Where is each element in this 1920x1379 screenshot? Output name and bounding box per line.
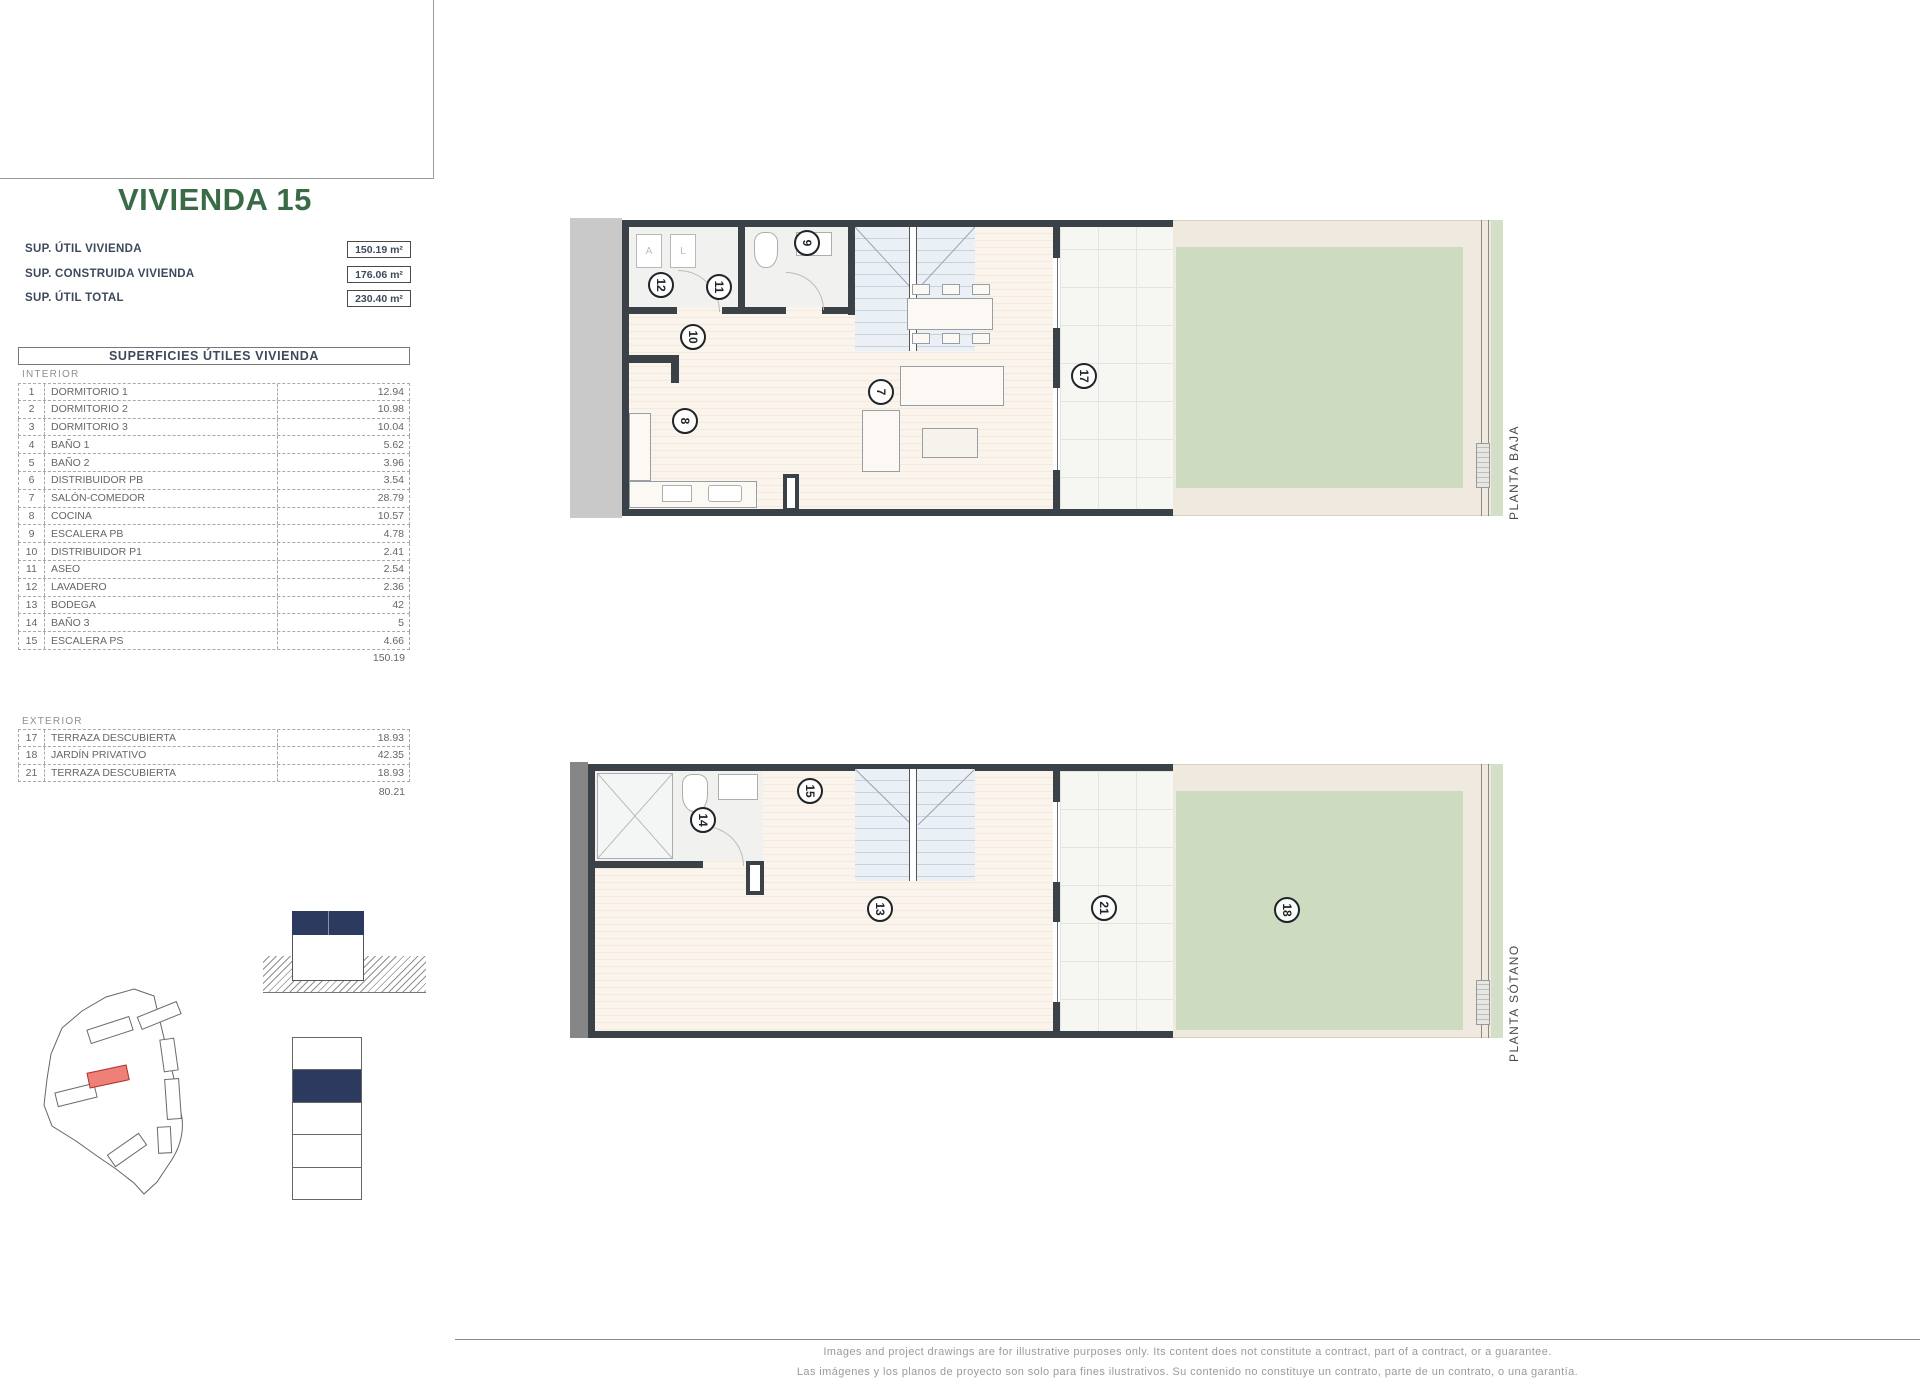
plan-label-planta-sotano: PLANTA SÓTANO xyxy=(1507,962,1521,1062)
row-number: 3 xyxy=(19,419,45,436)
surface-row: 14BAÑO 35 xyxy=(18,614,410,632)
surface-row: 17TERRAZA DESCUBIERTA18.93 xyxy=(18,729,410,747)
stat-value: 176.06 m² xyxy=(347,266,411,283)
surface-row: 12LAVADERO2.36 xyxy=(18,579,410,597)
surface-row: 13BODEGA42 xyxy=(18,597,410,615)
surface-row: 21TERRAZA DESCUBIERTA18.93 xyxy=(18,765,410,783)
sliding-door-glass xyxy=(1053,922,1060,1002)
row-name: BAÑO 3 xyxy=(45,614,277,631)
garden-gate xyxy=(1476,980,1490,1025)
stat-value: 230.40 m² xyxy=(347,290,411,307)
coffee-table xyxy=(922,428,978,458)
stack-level xyxy=(293,1168,361,1199)
sofa xyxy=(900,366,1004,406)
row-name: ASEO xyxy=(45,561,277,578)
site-plan xyxy=(38,985,200,1203)
surface-row: 1DORMITORIO 112.94 xyxy=(18,383,410,401)
row-name: ESCALERA PS xyxy=(45,632,277,649)
row-value: 3.96 xyxy=(277,454,409,471)
street-strip xyxy=(570,218,622,518)
shower-icon xyxy=(597,773,673,859)
room-marker-13: 13 xyxy=(867,896,893,922)
wall xyxy=(1060,220,1173,227)
room-marker-7: 7 xyxy=(868,379,894,405)
row-value: 4.66 xyxy=(277,632,409,649)
footer-disclaimer-en: Images and project drawings are for illu… xyxy=(455,1346,1920,1358)
exterior-table: 17TERRAZA DESCUBIERTA18.9318JARDÍN PRIVA… xyxy=(18,729,410,782)
room-marker-9: 9 xyxy=(794,230,820,256)
wall xyxy=(822,307,855,314)
row-number: 14 xyxy=(19,614,45,631)
row-number: 13 xyxy=(19,597,45,614)
room-marker-21: 21 xyxy=(1091,895,1117,921)
sliding-door-glass xyxy=(1053,388,1060,470)
row-number: 12 xyxy=(19,579,45,596)
row-name: SALÓN-COMEDOR xyxy=(45,490,277,507)
row-name: LAVADERO xyxy=(45,579,277,596)
room-marker-10: 10 xyxy=(680,324,706,350)
kitchen-counter xyxy=(629,413,651,481)
wall xyxy=(595,861,703,868)
stack-level xyxy=(293,1103,361,1135)
row-value: 5 xyxy=(277,614,409,631)
stack-level xyxy=(293,1038,361,1070)
sink-icon xyxy=(718,774,758,800)
surface-row: 6DISTRIBUIDOR PB3.54 xyxy=(18,472,410,490)
row-number: 4 xyxy=(19,436,45,453)
garden-lawn xyxy=(1176,247,1463,488)
wall xyxy=(1060,764,1173,771)
row-number: 5 xyxy=(19,454,45,471)
row-name: COCINA xyxy=(45,508,277,525)
stack-diagram xyxy=(292,1037,362,1200)
garden-gate xyxy=(1476,443,1490,488)
floor-plan-planta-baja: A L xyxy=(570,218,1503,518)
surface-row: 9ESCALERA PB4.78 xyxy=(18,525,410,543)
surface-row: 10DISTRIBUIDOR P12.41 xyxy=(18,543,410,561)
chair xyxy=(942,284,960,295)
site-building xyxy=(165,1079,182,1120)
row-value: 42.35 xyxy=(277,747,409,764)
toilet-icon xyxy=(754,232,778,268)
section-basement-block xyxy=(292,934,364,981)
door-leaf xyxy=(787,478,795,508)
site-building xyxy=(157,1127,171,1154)
row-number: 17 xyxy=(19,730,45,746)
stack-level xyxy=(293,1135,361,1167)
wall xyxy=(848,227,855,315)
row-value: 10.98 xyxy=(277,401,409,418)
floor-plan-planta-sotano: 1415132118 xyxy=(570,762,1503,1038)
row-number: 7 xyxy=(19,490,45,507)
row-number: 2 xyxy=(19,401,45,418)
stat-label: SUP. ÚTIL TOTAL xyxy=(25,292,124,304)
interior-section-label: INTERIOR xyxy=(22,369,79,380)
chair xyxy=(972,333,990,344)
dryer-icon: L xyxy=(670,234,696,268)
row-value: 42 xyxy=(277,597,409,614)
surface-row: 5BAÑO 23.96 xyxy=(18,454,410,472)
chair xyxy=(912,284,930,295)
row-value: 2.54 xyxy=(277,561,409,578)
exterior-total: 80.21 xyxy=(18,786,410,798)
footer-divider xyxy=(455,1339,1920,1340)
surfaces-table-header: SUPERFICIES ÚTILES VIVIENDA xyxy=(18,347,410,365)
interior-total: 150.19 xyxy=(18,652,410,664)
row-value: 5.62 xyxy=(277,436,409,453)
row-number: 10 xyxy=(19,543,45,560)
stat-label: SUP. ÚTIL VIVIENDA xyxy=(25,243,142,255)
closet-nook xyxy=(750,865,760,891)
row-value: 2.36 xyxy=(277,579,409,596)
surface-row: 2DORMITORIO 210.98 xyxy=(18,401,410,419)
surface-row: 18JARDÍN PRIVATIVO42.35 xyxy=(18,747,410,765)
surface-row: 11ASEO2.54 xyxy=(18,561,410,579)
row-number: 6 xyxy=(19,472,45,489)
window-glass xyxy=(1053,802,1060,882)
stat-label: SUP. CONSTRUIDA VIVIENDA xyxy=(25,268,195,280)
room-marker-17: 17 xyxy=(1071,363,1097,389)
kitchen-sink-icon xyxy=(662,485,692,502)
wall xyxy=(722,307,786,314)
row-value: 12.94 xyxy=(277,384,409,400)
chair xyxy=(912,333,930,344)
stair-rail xyxy=(909,769,917,881)
plan-label-planta-baja: PLANTA BAJA xyxy=(1507,438,1521,520)
row-value: 3.54 xyxy=(277,472,409,489)
row-value: 2.41 xyxy=(277,543,409,560)
terrace-21 xyxy=(1060,764,1173,1038)
room-marker-18: 18 xyxy=(1274,897,1300,923)
wall xyxy=(1060,509,1173,516)
row-name: DORMITORIO 2 xyxy=(45,401,277,418)
surface-row: 4BAÑO 15.62 xyxy=(18,436,410,454)
room-marker-12: 12 xyxy=(648,272,674,298)
row-value: 10.57 xyxy=(277,508,409,525)
row-value: 4.78 xyxy=(277,525,409,542)
section-highlight-block xyxy=(292,911,364,935)
wall xyxy=(629,307,677,314)
row-name: DISTRIBUIDOR P1 xyxy=(45,543,277,560)
chair xyxy=(942,333,960,344)
footer-disclaimer-es: Las imágenes y los planos de proyecto so… xyxy=(455,1366,1920,1378)
wall xyxy=(671,355,679,383)
row-name: TERRAZA DESCUBIERTA xyxy=(45,730,277,746)
row-number: 18 xyxy=(19,747,45,764)
row-name: BODEGA xyxy=(45,597,277,614)
interior-table: 1DORMITORIO 112.942DORMITORIO 210.983DOR… xyxy=(18,383,410,650)
corner-frame xyxy=(0,0,434,179)
surface-row: 3DORMITORIO 310.04 xyxy=(18,419,410,437)
stat-value: 150.19 m² xyxy=(347,241,411,258)
hob-icon xyxy=(708,485,742,502)
row-value: 28.79 xyxy=(277,490,409,507)
row-value: 10.04 xyxy=(277,419,409,436)
row-number: 1 xyxy=(19,384,45,400)
surface-row: 7SALÓN-COMEDOR28.79 xyxy=(18,490,410,508)
row-number: 8 xyxy=(19,508,45,525)
wall xyxy=(1060,1031,1173,1038)
row-name: ESCALERA PB xyxy=(45,525,277,542)
row-value: 18.93 xyxy=(277,730,409,746)
exterior-section-label: EXTERIOR xyxy=(22,716,83,727)
row-name: DISTRIBUIDOR PB xyxy=(45,472,277,489)
washer-icon: A xyxy=(636,234,662,268)
room-marker-11: 11 xyxy=(706,274,732,300)
row-name: DORMITORIO 3 xyxy=(45,419,277,436)
row-value: 18.93 xyxy=(277,765,409,782)
hedge xyxy=(1491,764,1503,1038)
hedge xyxy=(1491,220,1503,516)
page-title: VIVIENDA 15 xyxy=(118,182,312,218)
surface-row: 8COCINA10.57 xyxy=(18,508,410,526)
dining-table xyxy=(907,298,993,330)
room-marker-8: 8 xyxy=(672,408,698,434)
armchair xyxy=(862,410,900,472)
row-number: 15 xyxy=(19,632,45,649)
chair xyxy=(972,284,990,295)
plan-sheet: VIVIENDA 15 SUP. ÚTIL VIVIENDA150.19 m²S… xyxy=(0,0,1920,1379)
row-number: 9 xyxy=(19,525,45,542)
room-marker-14: 14 xyxy=(690,807,716,833)
row-number: 11 xyxy=(19,561,45,578)
window-glass xyxy=(1053,258,1060,328)
wall xyxy=(738,227,745,307)
row-name: BAÑO 2 xyxy=(45,454,277,471)
row-name: TERRAZA DESCUBIERTA xyxy=(45,765,277,782)
earth-strip xyxy=(570,762,588,1038)
stack-level-highlight xyxy=(293,1070,361,1102)
room-marker-15: 15 xyxy=(797,778,823,804)
garden-lawn xyxy=(1176,791,1463,1030)
row-name: DORMITORIO 1 xyxy=(45,384,277,400)
surface-row: 15ESCALERA PS4.66 xyxy=(18,632,410,650)
row-name: BAÑO 1 xyxy=(45,436,277,453)
row-name: JARDÍN PRIVATIVO xyxy=(45,747,277,764)
row-number: 21 xyxy=(19,765,45,782)
